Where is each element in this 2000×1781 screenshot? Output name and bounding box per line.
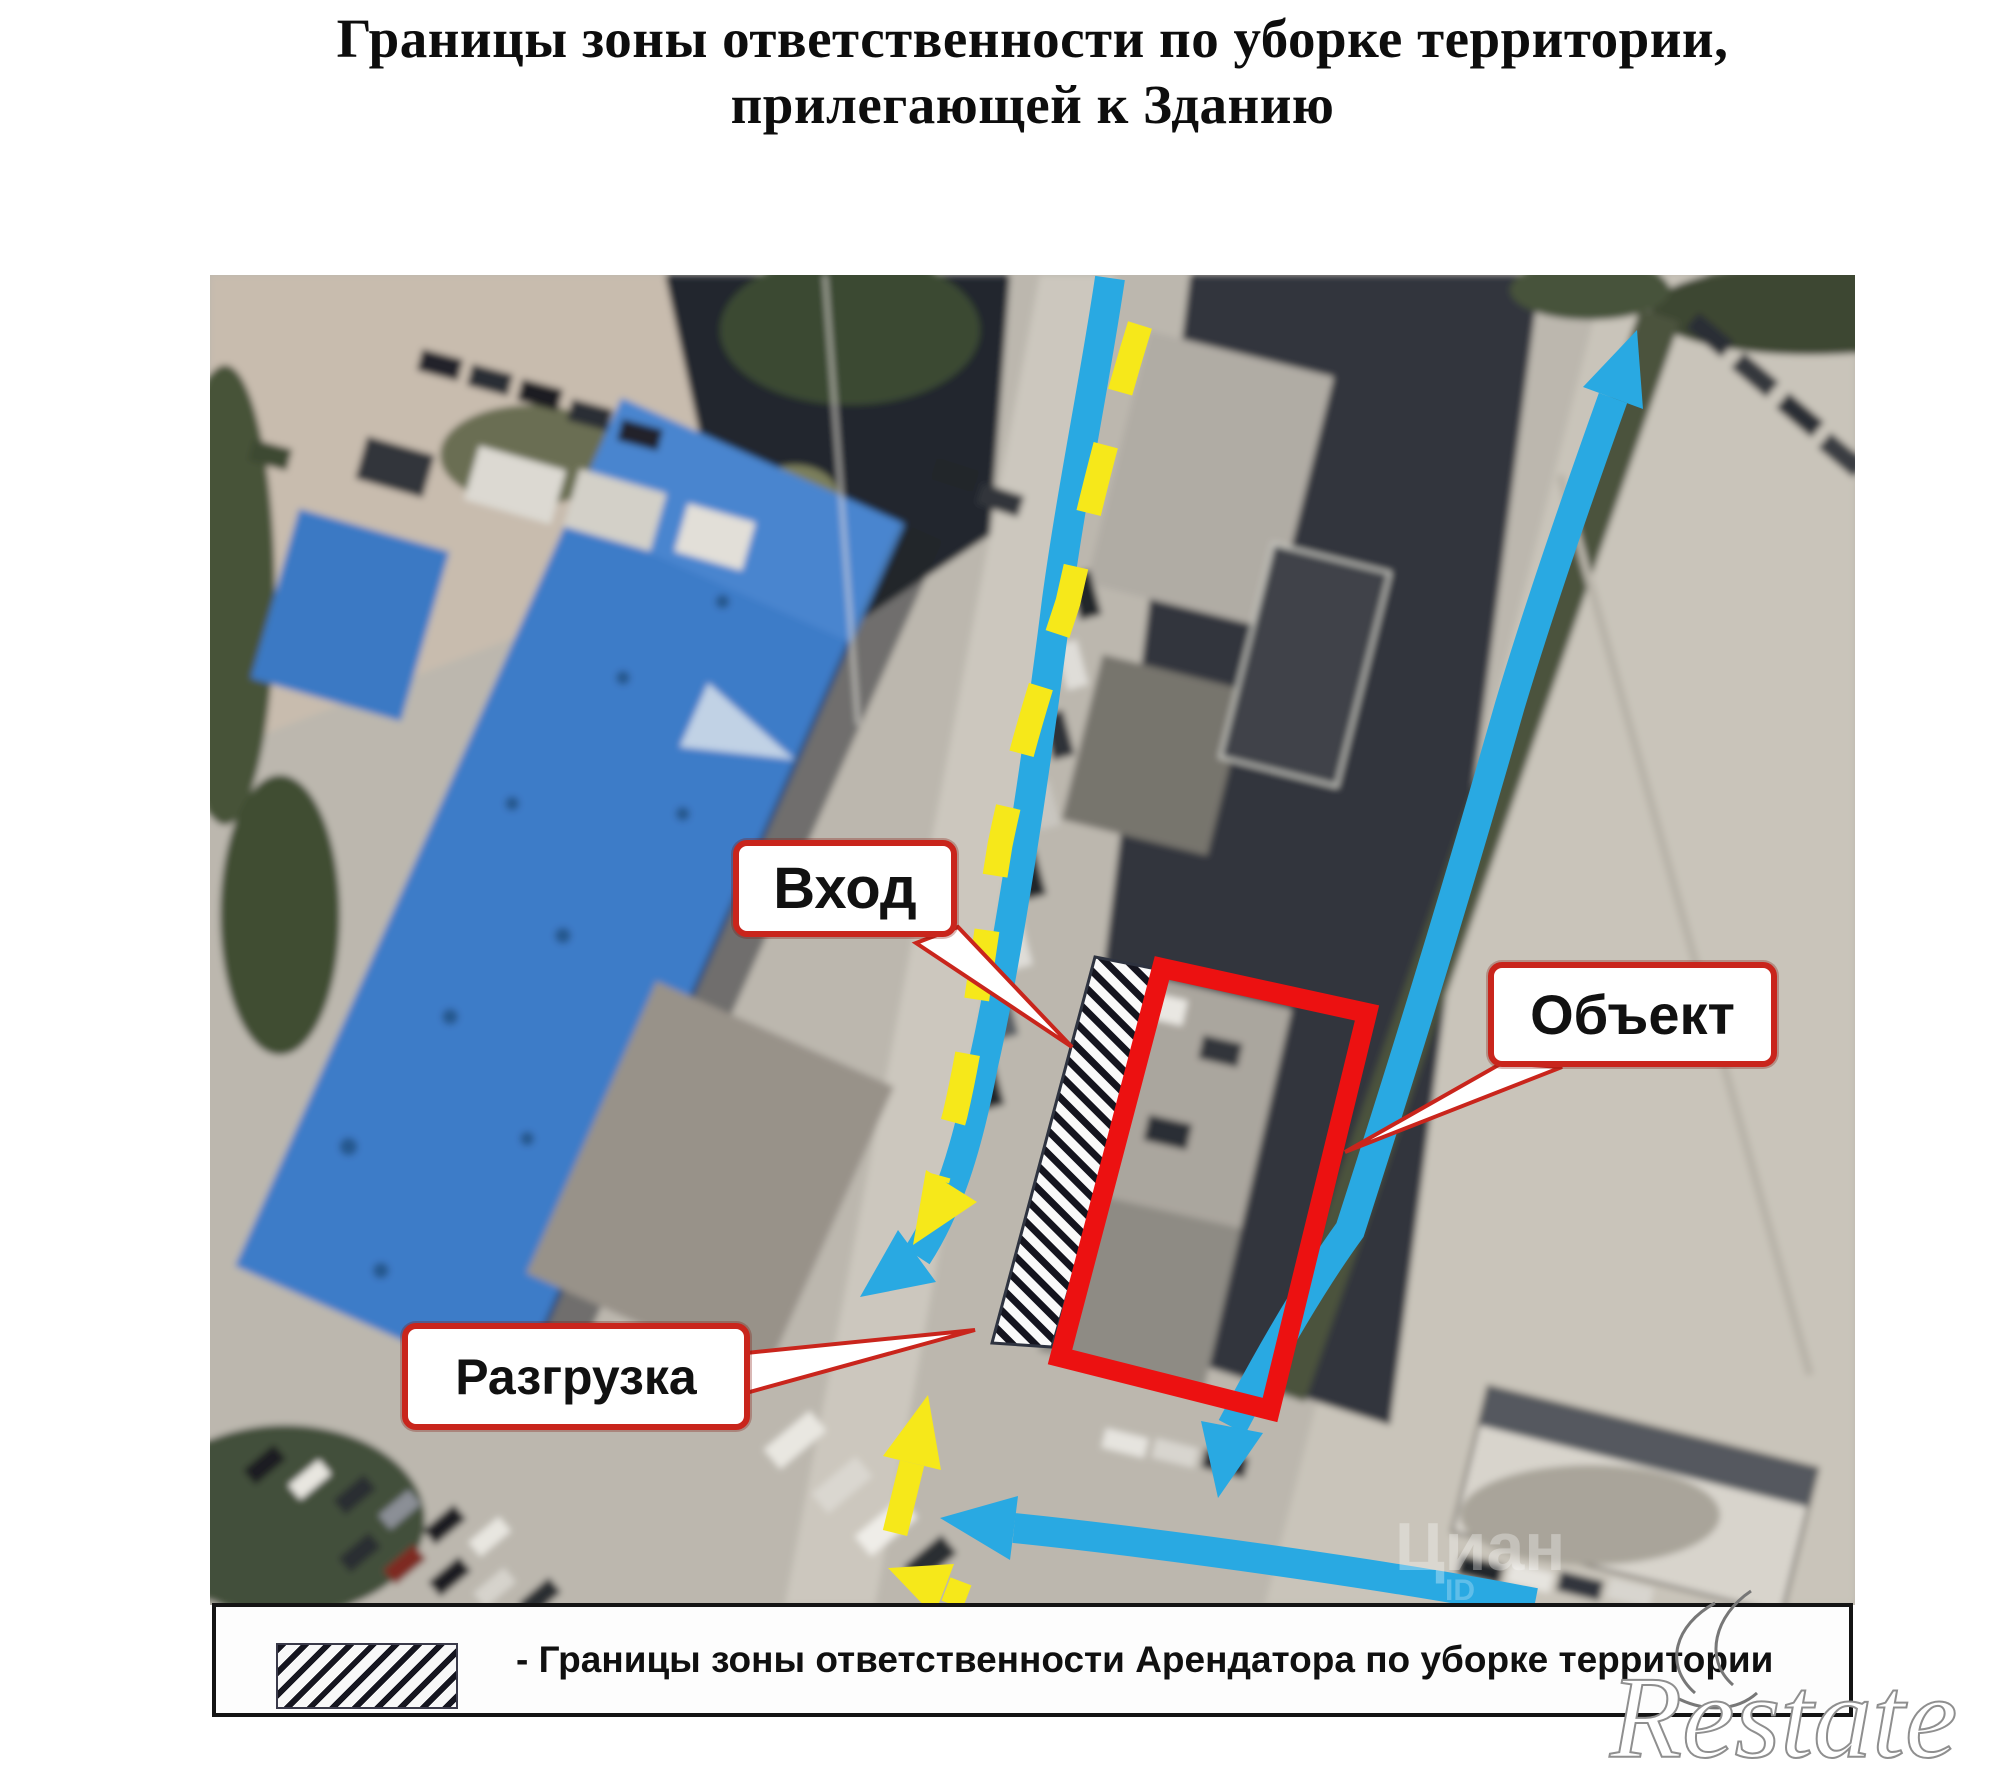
callout-entrance-label: Вход: [773, 855, 916, 922]
hatch-swatch-icon: [276, 1643, 458, 1709]
callout-object: Объект: [1488, 962, 1777, 1067]
map-watermark-brand: Циан: [1395, 1509, 1565, 1585]
map-watermark-id: ID: [1445, 1574, 1475, 1605]
unloading-arrow-left-shaft: [946, 1589, 967, 1597]
page-title-line1: Границы зоны ответственности по уборке т…: [210, 6, 1855, 72]
page-title-line2: прилегающей к Зданию: [210, 72, 1855, 138]
callout-unloading-label: Разгрузка: [455, 1348, 697, 1406]
callout-object-label: Объект: [1530, 982, 1735, 1047]
page: { "title": { "line1": "Границы зоны отве…: [0, 0, 2000, 1781]
callout-unloading: Разгрузка: [402, 1323, 750, 1430]
page-title: Границы зоны ответственности по уборке т…: [210, 6, 1855, 138]
brand-watermark-text: Restate: [1609, 1652, 1957, 1781]
callout-entrance: Вход: [733, 840, 957, 937]
brand-watermark: Restate: [1555, 1585, 2000, 1781]
unloading-arrow-up-shaft: [895, 1463, 912, 1533]
